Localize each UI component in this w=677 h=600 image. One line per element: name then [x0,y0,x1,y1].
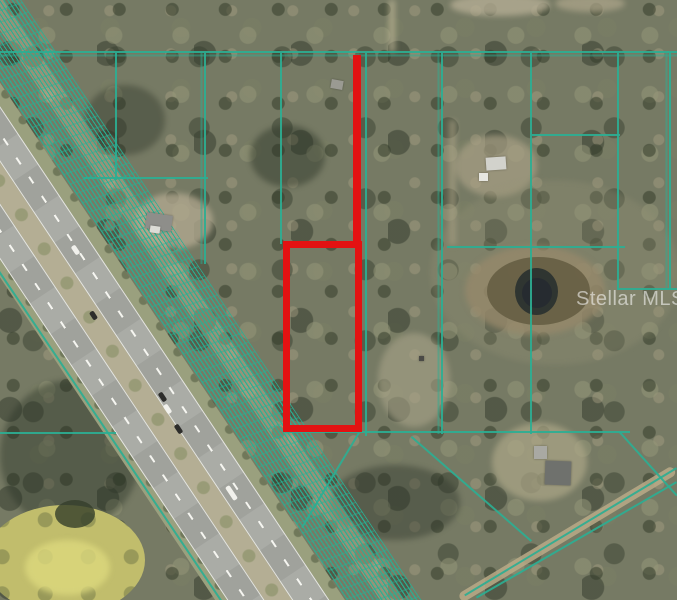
lot-line-v8 [669,53,671,290]
building [534,446,547,459]
pond-water-deep [522,278,552,308]
lot-line-v3 [280,53,282,244]
clearing-east-of-parcel [378,333,450,427]
lot-line-v4 [365,53,367,436]
section-line-north [0,51,677,53]
aerial-parcel-map: Stellar MLS [0,0,677,600]
road-line-b [476,481,677,598]
lot-line-h6 [0,432,116,434]
lot-line-v2 [204,53,206,264]
lot-line-h3 [532,134,620,136]
lot-line-v1 [115,53,117,180]
sand-trail-top [389,0,395,52]
lot-line-v7 [617,53,619,290]
grass-field-highlight [25,540,110,595]
sand-patch-top-2 [555,0,625,12]
lot-line-v6 [530,53,532,434]
building [330,79,343,90]
lot-line-h1 [84,177,208,179]
building [479,173,488,181]
building [150,225,161,233]
dark-forest-1 [250,125,325,187]
building [419,356,424,361]
mls-watermark: Stellar MLS [576,288,677,311]
building [545,461,572,486]
lot-line-v5 [441,53,443,434]
lot-line-h2 [447,246,625,248]
building [486,156,507,170]
clearing-south-house [492,423,587,501]
sand-patch-top [450,0,550,16]
field-tree-clump [55,500,95,528]
listing-parcel-outline [283,241,362,432]
listing-parcel-access-stem [353,55,361,248]
